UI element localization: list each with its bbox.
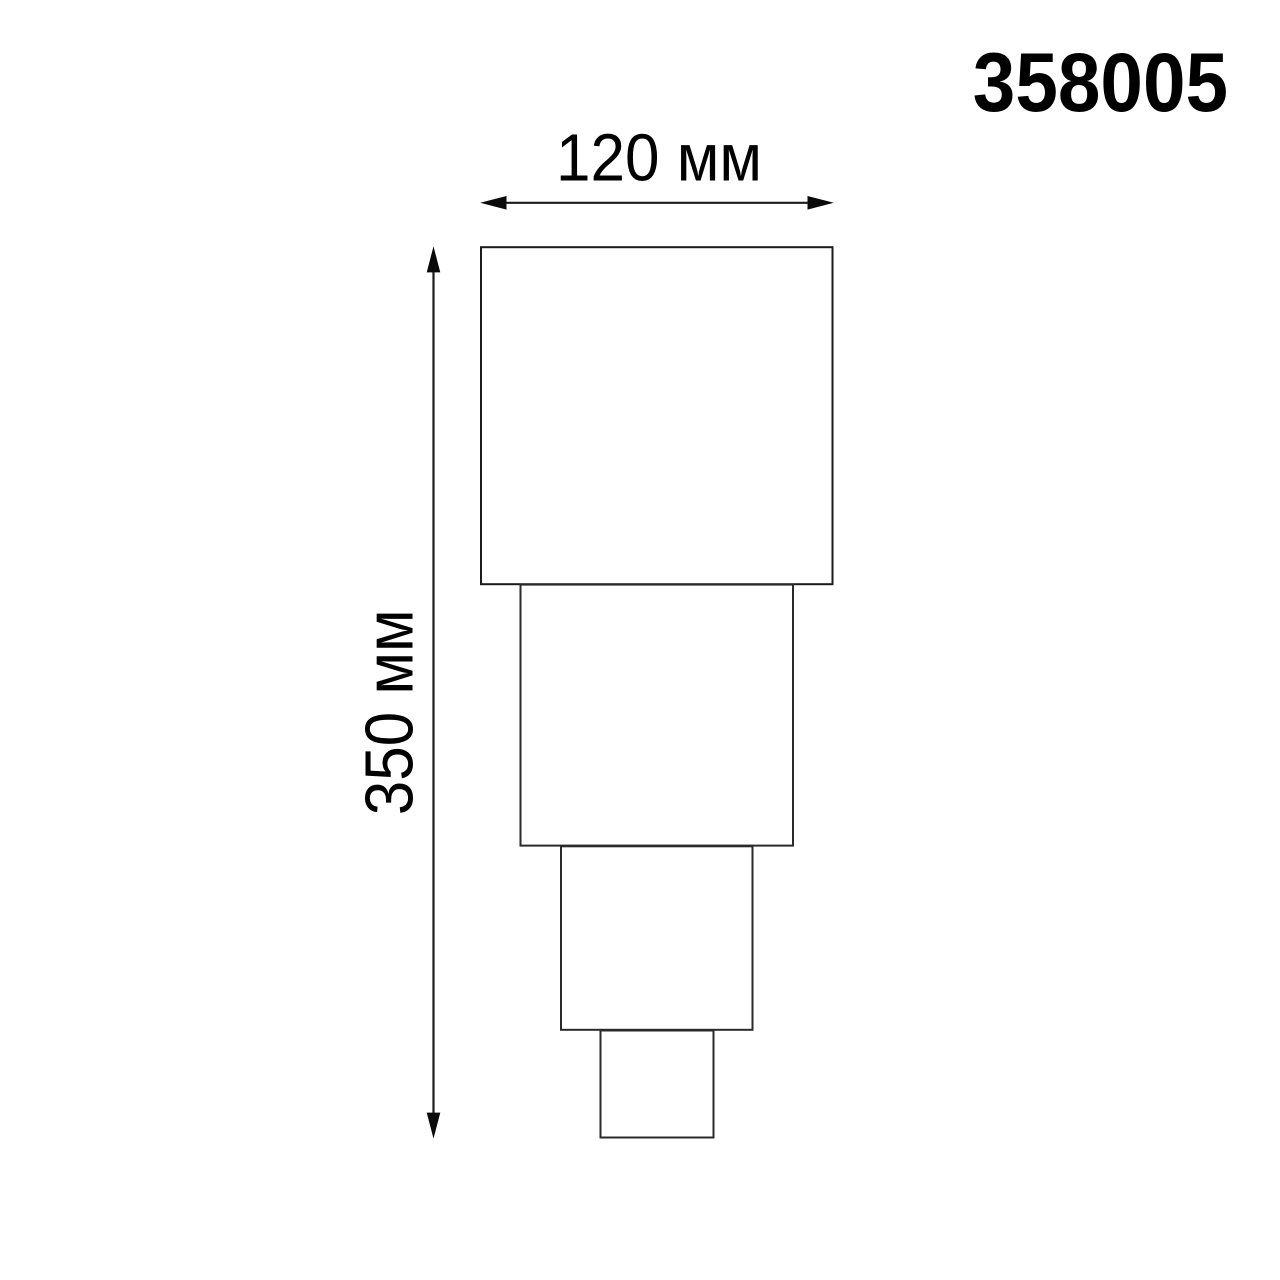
svg-text:358005: 358005 xyxy=(973,35,1228,129)
svg-text:120 мм: 120 мм xyxy=(556,120,762,195)
svg-text:350 мм: 350 мм xyxy=(351,609,427,815)
